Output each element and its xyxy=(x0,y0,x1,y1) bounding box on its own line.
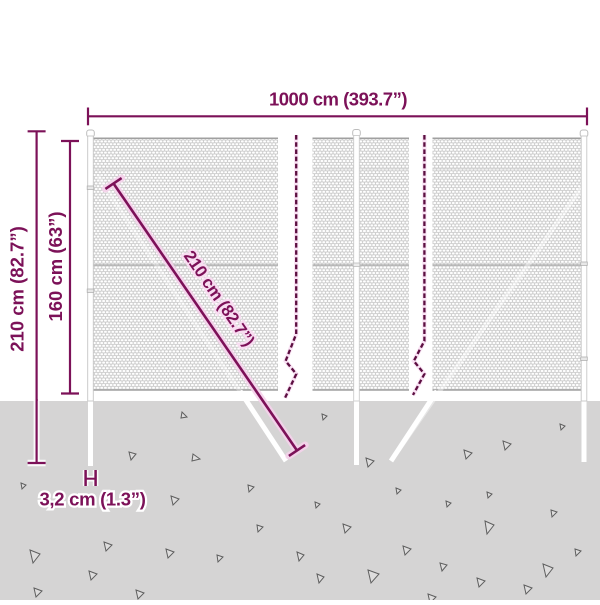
svg-text:1000 cm (393.7”): 1000 cm (393.7”) xyxy=(269,89,407,110)
svg-text:160 cm (63”): 160 cm (63”) xyxy=(45,211,66,321)
svg-text:210 cm (82.7”): 210 cm (82.7”) xyxy=(7,226,28,351)
svg-text:3,2 cm (1.3”): 3,2 cm (1.3”) xyxy=(39,489,145,510)
